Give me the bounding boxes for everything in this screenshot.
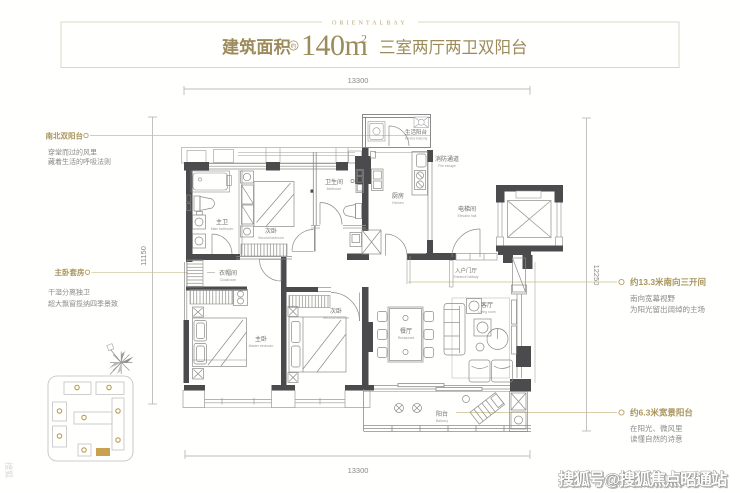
- svg-text:Balcony: Balcony: [436, 419, 448, 423]
- svg-text:约6.3米宽景阳台: 约6.3米宽景阳台: [630, 408, 693, 418]
- svg-text:客厅: 客厅: [481, 301, 493, 309]
- svg-text:Second bedroom: Second bedroom: [323, 316, 349, 320]
- svg-text:建筑面积: 建筑面积: [222, 37, 291, 57]
- svg-text:餐厅: 餐厅: [400, 327, 412, 335]
- svg-text:电梯间: 电梯间: [458, 205, 476, 213]
- svg-text:南向宽幕视野: 南向宽幕视野: [630, 293, 675, 303]
- svg-text:南北双阳台: 南北双阳台: [46, 131, 84, 141]
- svg-text:2: 2: [361, 32, 367, 46]
- svg-text:干湿分离独卫: 干湿分离独卫: [48, 288, 90, 297]
- svg-text:Cloakroom: Cloakroom: [220, 278, 237, 282]
- svg-text:藏着生活的呼吸法则: 藏着生活的呼吸法则: [48, 157, 111, 166]
- svg-text:生活阳台: 生活阳台: [405, 128, 428, 136]
- svg-text:穿堂而过的风里: 穿堂而过的风里: [48, 148, 97, 157]
- svg-text:Entrance hallway: Entrance hallway: [453, 275, 478, 279]
- svg-text:为阳光留出阔绰的主场: 为阳光留出阔绰的主场: [630, 304, 705, 314]
- svg-text:Second bedroom: Second bedroom: [258, 236, 284, 240]
- svg-text:主卧: 主卧: [255, 335, 267, 343]
- svg-text:主卫: 主卫: [216, 218, 228, 226]
- svg-text:三室两厅两卫双阳台: 三室两厅两卫双阳台: [379, 38, 528, 57]
- svg-text:读懂自然的诗意: 读懂自然的诗意: [630, 434, 683, 444]
- svg-text:搜狐: 搜狐: [4, 462, 14, 478]
- svg-text:超大飘窗揽纳四季景致: 超大飘窗揽纳四季景致: [48, 299, 118, 308]
- svg-text:Bathroom: Bathroom: [327, 187, 342, 191]
- svg-text:约13.3米南向三开间: 约13.3米南向三开间: [630, 277, 706, 287]
- svg-text:Master bedroom: Master bedroom: [249, 344, 274, 348]
- svg-text:卫生间: 卫生间: [325, 178, 343, 186]
- svg-text:入户门厅: 入户门厅: [455, 267, 478, 275]
- svg-text:厨房: 厨房: [392, 192, 404, 200]
- svg-text:主卧套房: 主卧套房: [55, 267, 85, 277]
- svg-text:11150: 11150: [139, 246, 148, 266]
- svg-text:消防通道: 消防通道: [435, 155, 459, 163]
- svg-text:次卧: 次卧: [265, 227, 277, 235]
- svg-text:衣帽间: 衣帽间: [219, 269, 237, 277]
- svg-text:约: 约: [291, 42, 297, 50]
- svg-text:ORIENTALBAY: ORIENTALBAY: [332, 21, 408, 27]
- svg-text:在阳光、微风里: 在阳光、微风里: [630, 423, 683, 433]
- svg-text:13300: 13300: [348, 76, 369, 85]
- svg-text:Kitchen: Kitchen: [392, 201, 403, 205]
- svg-text:阳台: 阳台: [436, 410, 448, 418]
- svg-text:140m: 140m: [301, 29, 368, 62]
- svg-text:Main bathroom: Main bathroom: [211, 227, 234, 231]
- svg-text:搜狐号@搜狐焦点昭通站: 搜狐号@搜狐焦点昭通站: [558, 469, 728, 489]
- svg-text:次卧: 次卧: [330, 307, 342, 315]
- svg-text:13300: 13300: [348, 466, 369, 475]
- svg-text:Fire escape: Fire escape: [438, 164, 456, 168]
- svg-text:Living room: Living room: [478, 310, 496, 314]
- svg-text:Restaurant: Restaurant: [398, 336, 415, 340]
- svg-text:Service balcony: Service balcony: [405, 137, 428, 141]
- svg-text:Elevator hall: Elevator hall: [458, 214, 477, 218]
